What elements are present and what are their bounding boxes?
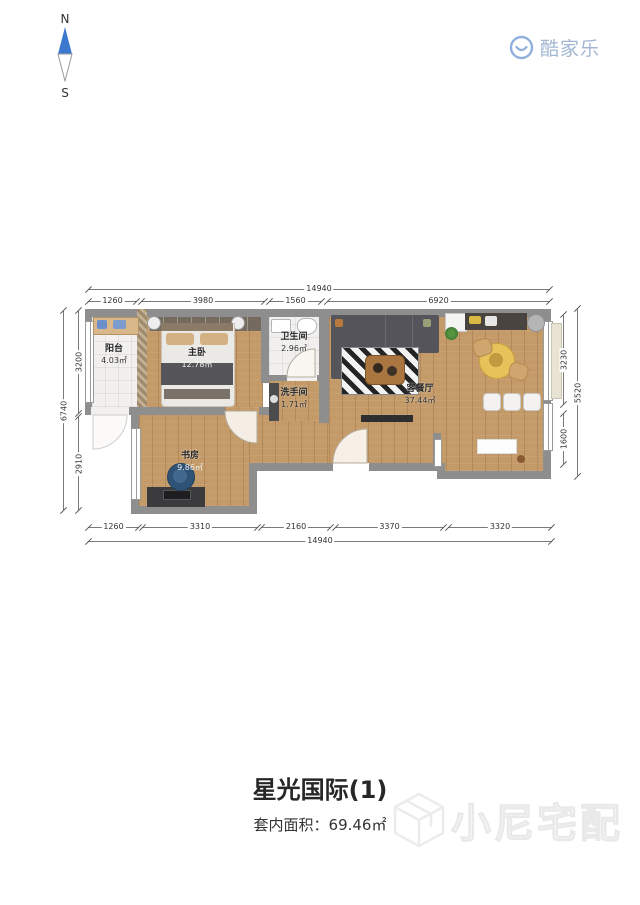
- floorplan: 阳台 4.03㎡ 主卧 12.78㎡ 卫生间 2.96㎡ 洗手间 1.71㎡ 客…: [85, 303, 555, 518]
- cube-logo-icon: [391, 791, 447, 849]
- door-swings: [85, 303, 555, 518]
- dim-top-total: 14940: [88, 289, 550, 290]
- balcony-door-arc: [93, 415, 127, 449]
- compass-north-label: N: [46, 12, 84, 26]
- dim-bottom-seg-5: 3320: [448, 527, 552, 528]
- kujiale-shield-icon: [509, 35, 534, 60]
- dim-left-seg-2: 2910: [78, 417, 79, 510]
- dim-left-total: 6740: [63, 311, 64, 510]
- watermark: 小尼宅配: [391, 791, 623, 849]
- compass-south-label: S: [46, 86, 84, 100]
- dim-top-seg-1: 1260: [88, 301, 137, 302]
- compass: N S: [46, 12, 84, 100]
- area-value: 69.46㎡: [329, 816, 387, 834]
- brand-logo-text: 酷家乐: [540, 34, 600, 61]
- brand-logo: 酷家乐: [509, 34, 600, 61]
- dim-bottom-seg-1: 1260: [88, 527, 139, 528]
- dim-right-seg-2: 1600: [563, 414, 564, 464]
- dim-right-total: 5520: [577, 309, 578, 476]
- dim-bottom-seg-3: 2160: [261, 527, 331, 528]
- area-label: 套内面积：: [254, 816, 329, 834]
- dim-bottom-seg-2: 3310: [142, 527, 258, 528]
- dim-top-seg-2: 3980: [141, 301, 265, 302]
- dim-bottom-seg-4: 3370: [335, 527, 444, 528]
- dim-right-seg-1: 3230: [563, 315, 564, 404]
- dim-top-seg-3: 1560: [269, 301, 322, 302]
- dim-left-seg-1: 3200: [78, 311, 79, 413]
- bedroom-door-arc: [225, 411, 257, 443]
- dim-bottom-total: 14940: [88, 541, 552, 542]
- floorplan-page: N S 酷家乐: [0, 0, 640, 905]
- compass-needle-icon: [55, 26, 75, 82]
- watermark-text: 小尼宅配: [451, 791, 623, 849]
- entry-door-arc: [333, 429, 367, 463]
- bathroom-door-arc: [287, 349, 315, 377]
- dim-top-seg-4: 6920: [327, 301, 550, 302]
